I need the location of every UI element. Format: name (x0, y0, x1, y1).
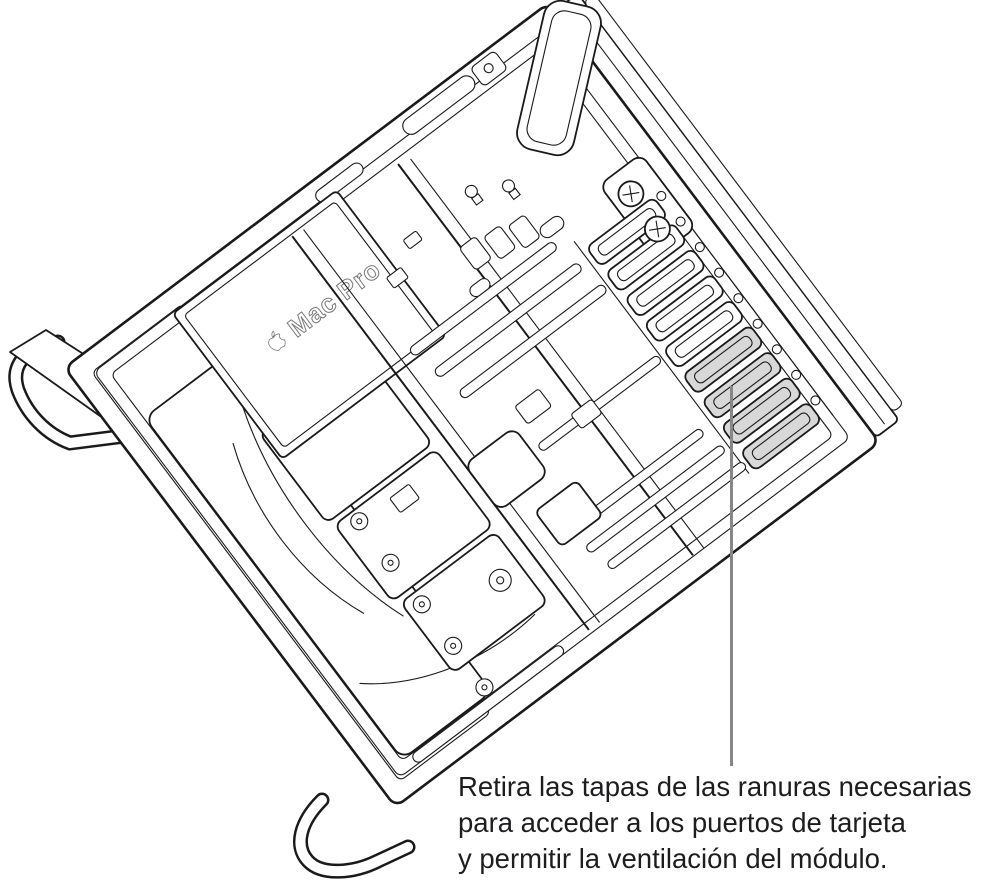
mac-pro-illustration: Mac Pro (0, 0, 1005, 883)
mac-pro-line-drawing: Mac Pro (0, 0, 1005, 883)
caption-line-1: Retira las tapas de las ranuras necesari… (458, 769, 972, 805)
case-body: Mac Pro (65, 0, 914, 807)
bottom-foot (300, 800, 408, 871)
caption-line-3: y permitir la ventilación del módulo. (458, 841, 972, 877)
caption-line-2: para acceder a los puertos de tarjeta (458, 805, 972, 841)
caption: Retira las tapas de las ranuras necesari… (458, 769, 972, 876)
